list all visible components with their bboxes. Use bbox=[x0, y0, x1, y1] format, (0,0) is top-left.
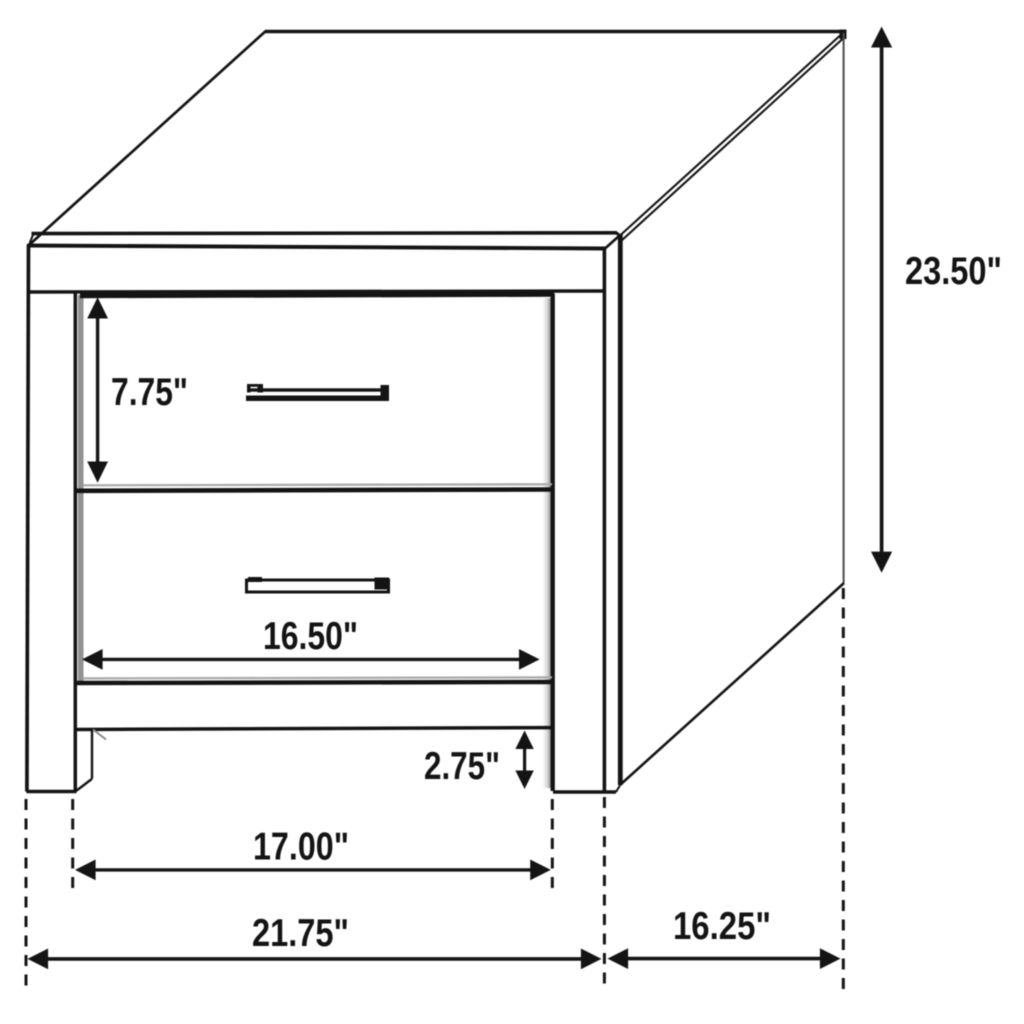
svg-text:16.25": 16.25" bbox=[673, 905, 771, 948]
svg-text:7.75": 7.75" bbox=[111, 371, 188, 414]
svg-text:16.50": 16.50" bbox=[263, 615, 358, 658]
svg-text:23.50": 23.50" bbox=[905, 250, 1002, 293]
svg-text:21.75": 21.75" bbox=[252, 912, 349, 955]
svg-text:17.00": 17.00" bbox=[253, 826, 349, 869]
svg-text:2.75": 2.75" bbox=[424, 745, 500, 788]
